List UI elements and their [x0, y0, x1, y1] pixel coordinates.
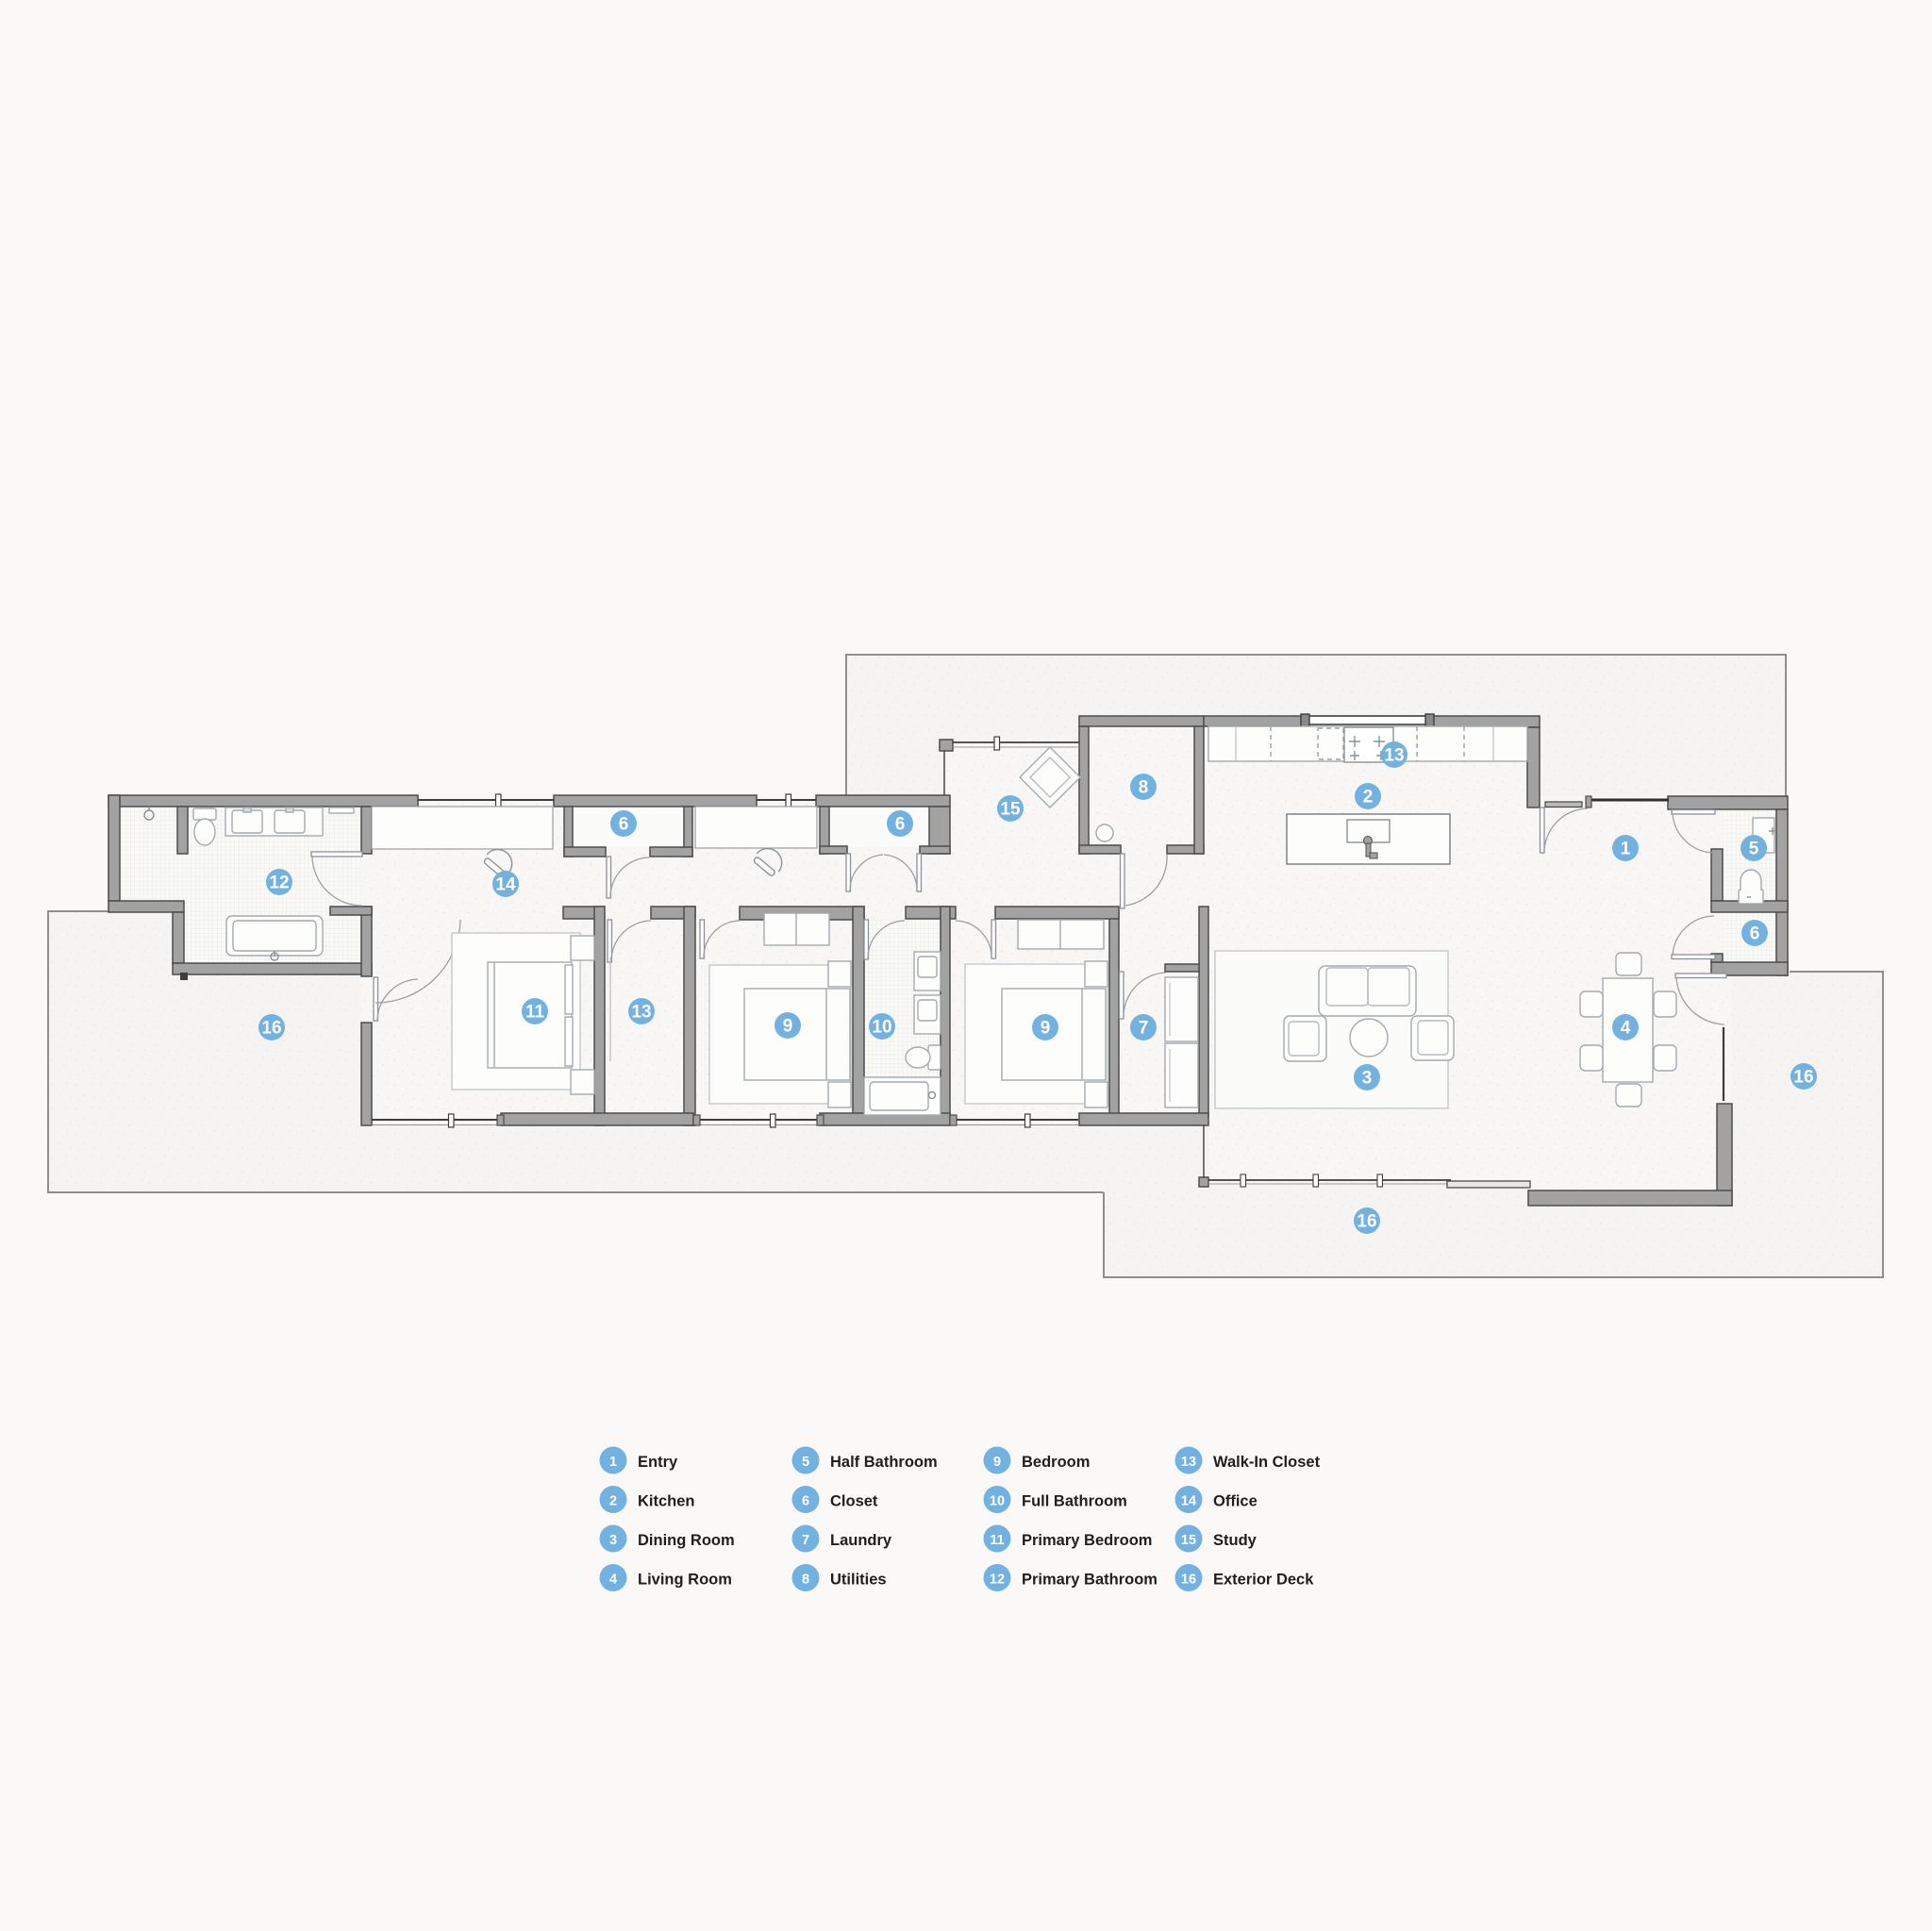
- svg-text:5: 5: [1749, 840, 1759, 859]
- svg-text:Kitchen: Kitchen: [638, 1493, 695, 1510]
- svg-text:5: 5: [802, 1455, 809, 1470]
- svg-text:4: 4: [609, 1573, 617, 1588]
- svg-text:9: 9: [1041, 1019, 1051, 1039]
- svg-text:9: 9: [993, 1455, 1001, 1470]
- svg-text:11: 11: [990, 1533, 1004, 1548]
- svg-text:Utilities: Utilities: [830, 1572, 887, 1589]
- svg-text:Full Bathroom: Full Bathroom: [1022, 1493, 1127, 1510]
- svg-text:Exterior Deck: Exterior Deck: [1213, 1572, 1314, 1589]
- svg-text:7: 7: [1139, 1019, 1149, 1039]
- svg-text:4: 4: [1621, 1019, 1631, 1039]
- svg-text:2: 2: [1363, 788, 1374, 807]
- svg-text:3: 3: [609, 1533, 617, 1548]
- svg-text:Closet: Closet: [830, 1493, 878, 1510]
- svg-text:2: 2: [609, 1494, 617, 1509]
- svg-text:15: 15: [1181, 1533, 1196, 1548]
- svg-text:Primary Bathroom: Primary Bathroom: [1022, 1572, 1158, 1589]
- svg-text:1: 1: [609, 1455, 617, 1470]
- svg-text:Office: Office: [1213, 1493, 1257, 1510]
- svg-text:6: 6: [895, 815, 906, 835]
- svg-text:12: 12: [269, 874, 289, 893]
- svg-text:14: 14: [495, 875, 516, 895]
- svg-text:12: 12: [990, 1573, 1005, 1588]
- svg-text:Entry: Entry: [638, 1454, 678, 1471]
- svg-text:Study: Study: [1213, 1532, 1257, 1549]
- svg-text:14: 14: [1181, 1494, 1196, 1509]
- svg-text:13: 13: [631, 1003, 651, 1023]
- svg-text:Laundry: Laundry: [830, 1532, 892, 1549]
- svg-text:Bedroom: Bedroom: [1022, 1454, 1090, 1471]
- svg-text:16: 16: [1181, 1573, 1196, 1588]
- svg-text:Walk-In Closet: Walk-In Closet: [1213, 1454, 1321, 1471]
- svg-text:7: 7: [802, 1533, 809, 1548]
- svg-text:Half Bathroom: Half Bathroom: [830, 1454, 938, 1471]
- svg-text:9: 9: [783, 1017, 793, 1037]
- svg-text:16: 16: [261, 1019, 281, 1039]
- svg-text:10: 10: [990, 1494, 1005, 1509]
- svg-text:6: 6: [1750, 924, 1760, 944]
- svg-text:10: 10: [872, 1018, 891, 1038]
- svg-text:1: 1: [1621, 840, 1631, 859]
- svg-text:Dining Room: Dining Room: [638, 1532, 735, 1549]
- svg-text:8: 8: [1139, 778, 1149, 798]
- svg-text:3: 3: [1362, 1069, 1373, 1089]
- svg-text:16: 16: [1793, 1068, 1813, 1088]
- svg-text:13: 13: [1384, 746, 1404, 766]
- svg-text:Primary Bedroom: Primary Bedroom: [1022, 1532, 1152, 1549]
- svg-text:11: 11: [525, 1003, 545, 1023]
- svg-text:16: 16: [1357, 1212, 1376, 1232]
- svg-text:8: 8: [802, 1573, 809, 1588]
- svg-text:15: 15: [1000, 800, 1021, 820]
- svg-text:13: 13: [1181, 1455, 1196, 1470]
- svg-text:6: 6: [619, 815, 629, 835]
- svg-text:Living Room: Living Room: [638, 1572, 732, 1589]
- svg-text:6: 6: [802, 1494, 809, 1509]
